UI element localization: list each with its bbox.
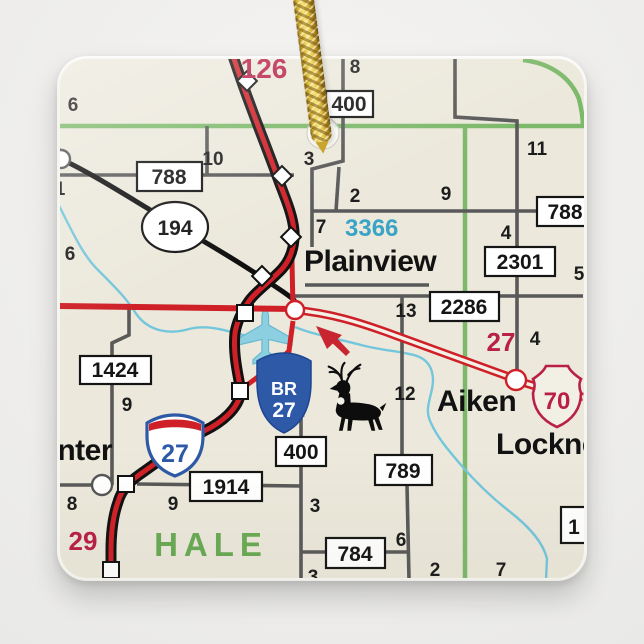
deer-icon: [329, 363, 387, 431]
us-70-shield: 70: [533, 366, 581, 427]
mile-number: 4: [530, 329, 541, 350]
mile-number: 6: [68, 95, 79, 116]
place-labels: Plainview Aiken Lockne nter HALE: [60, 245, 584, 563]
mile-number: 9: [122, 395, 133, 416]
mile-number: 9: [168, 494, 179, 515]
business-route-line2: 27: [272, 399, 295, 422]
product-photo-scene: 400 788 194 788 2301 2286 1424 1914: [0, 0, 644, 644]
mile-number: 6: [65, 244, 76, 265]
mile-number: 11: [527, 139, 548, 160]
route-box-789: 789: [385, 460, 420, 483]
route-box-partial-right: 1: [568, 516, 580, 539]
deer-chest-patch: [337, 397, 344, 404]
mile-number: 1: [60, 179, 66, 200]
mile-number: 12: [394, 384, 415, 405]
mile-number: 10: [202, 149, 223, 170]
county-label-hale: HALE: [154, 526, 268, 563]
route-box-788-left: 788: [151, 166, 186, 189]
mile-number: 6: [396, 530, 407, 551]
mile-number: 8: [67, 494, 78, 515]
mile-number: 7: [316, 217, 327, 238]
town-label-plainview: Plainview: [304, 245, 437, 278]
route-box-784: 784: [337, 543, 372, 566]
mile-number: 9: [441, 184, 452, 205]
red-label-126: 126: [241, 59, 288, 84]
route-box-2286: 2286: [441, 296, 488, 319]
route-oval-194: 194: [157, 217, 192, 240]
mile-number: 3: [308, 567, 319, 578]
route-box-788-right: 788: [547, 201, 582, 224]
teal-label-3366: 3366: [345, 215, 398, 242]
mile-number: 7: [496, 560, 507, 578]
route-box-2301: 2301: [497, 251, 544, 274]
us-70-number: 70: [544, 388, 571, 415]
mile-number: 3: [304, 149, 315, 170]
business-route-line1: BR: [271, 379, 297, 399]
mile-number: 8: [350, 59, 361, 78]
mile-number: 2: [350, 186, 361, 207]
mile-number: 13: [395, 301, 416, 322]
red-label-27: 27: [487, 327, 516, 357]
interstate-27-number: 27: [161, 440, 189, 468]
mile-number: 4: [501, 223, 512, 244]
town-label-center-partial: nter: [60, 434, 113, 467]
route-box-400-low: 400: [283, 441, 318, 464]
route-box-1914: 1914: [203, 476, 250, 499]
town-label-aiken: Aiken: [437, 385, 516, 418]
route-box-1424: 1424: [92, 359, 139, 382]
town-label-lockney: Lockne: [496, 428, 584, 461]
route-box-400-top: 400: [331, 93, 366, 116]
mile-number: 3: [310, 496, 321, 517]
mile-number: 2: [430, 560, 441, 578]
mile-number: 5: [574, 264, 584, 285]
business-route-27-shield: BR 27: [257, 353, 311, 433]
red-label-29: 29: [69, 526, 98, 556]
